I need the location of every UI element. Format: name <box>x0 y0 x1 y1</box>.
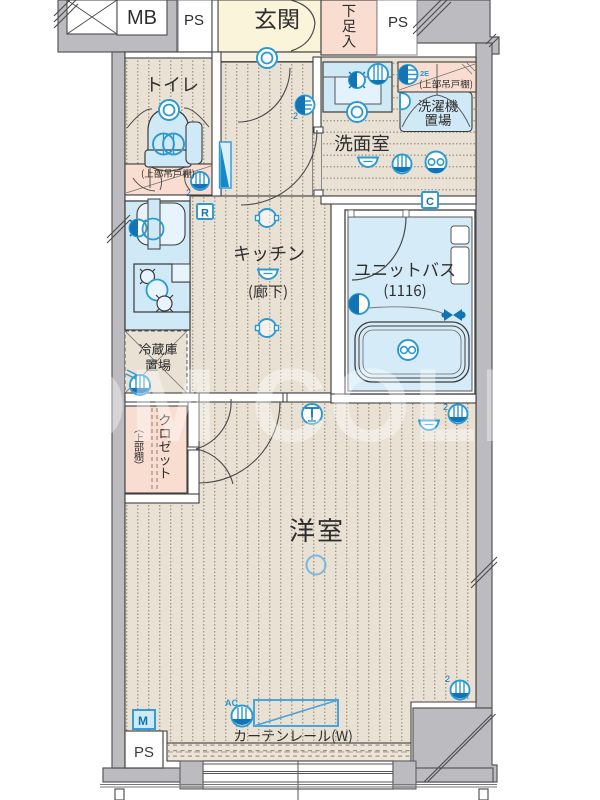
svg-text:2E: 2E <box>420 69 429 78</box>
svg-text:2: 2 <box>293 111 298 121</box>
svg-text:2: 2 <box>186 188 191 198</box>
svg-text:M: M <box>138 714 148 728</box>
svg-text:OM COLL: OM COLL <box>46 348 546 464</box>
svg-text:R: R <box>201 208 209 220</box>
svg-text:PS: PS <box>388 14 408 31</box>
svg-text:C: C <box>426 196 434 208</box>
svg-text:700: 700 <box>438 121 447 127</box>
svg-text:2: 2 <box>445 674 450 684</box>
svg-text:MB: MB <box>127 7 157 29</box>
svg-text:AC: AC <box>225 698 238 708</box>
svg-text:PS: PS <box>134 744 154 761</box>
svg-text:PS: PS <box>184 12 204 29</box>
